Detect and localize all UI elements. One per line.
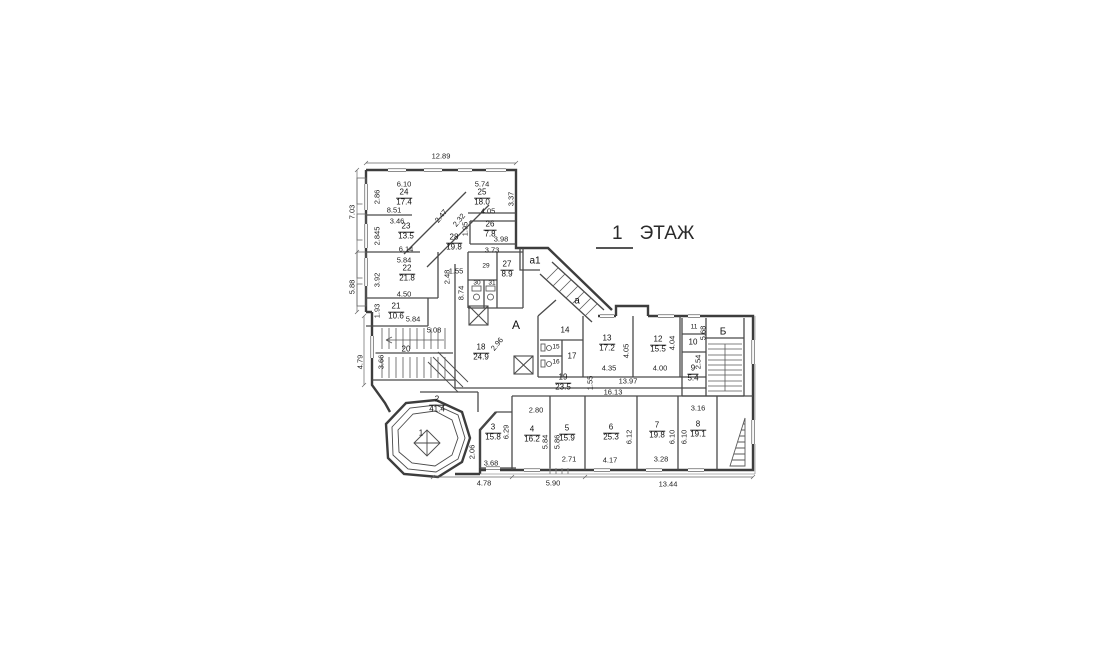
dimension: 13.97 <box>619 377 638 386</box>
dimension: 2.845 <box>373 227 382 246</box>
room-label-21: 2110.6 <box>388 303 404 322</box>
room-label-8: 819.1 <box>690 421 706 440</box>
room-label-14: 14 <box>561 327 570 336</box>
room-label-12: 1215.5 <box>650 336 666 355</box>
letter-B: Б <box>720 327 727 338</box>
room-label-30: 30 <box>473 279 480 286</box>
dimension: 8.74 <box>457 286 466 301</box>
stair-b-steps <box>708 344 742 391</box>
floor-word: ЭТАЖ <box>640 223 695 244</box>
dimension: 3.66 <box>377 355 386 370</box>
room-label-25: 2518.0 <box>474 189 490 208</box>
dimension: 3.46 <box>390 217 405 226</box>
dimension: 5.88 <box>348 280 357 295</box>
dimension: 3.68 <box>484 459 499 468</box>
dimension: 6.12 <box>625 430 634 445</box>
dimension: 4.35 <box>602 364 617 373</box>
room-label-24: 2417.4 <box>396 189 412 208</box>
room-label-10: 10 <box>689 339 698 348</box>
room-label-15: 15 <box>552 343 559 350</box>
room-label-11: 11 <box>691 323 698 330</box>
floorplan-page: 1ЭТАЖ 1 241.4 315.8 416.2 515.9 625.3 71… <box>0 0 1120 658</box>
room-label-16: 16 <box>552 358 559 365</box>
dimension: 13.44 <box>659 480 678 489</box>
dimension: 4.05 <box>481 207 496 216</box>
dimension: 5.68 <box>699 326 708 341</box>
dimension: 3.73 <box>485 246 500 255</box>
room-label-29: 29 <box>482 262 489 269</box>
dimension: 4.78 <box>477 479 492 488</box>
dimension: 7.03 <box>348 205 357 220</box>
room-label-17: 17 <box>568 353 577 362</box>
room-label-6: 625.3 <box>603 424 619 443</box>
room-label-27: 278.9 <box>501 261 514 280</box>
room-label-2: 241.4 <box>429 396 445 415</box>
dimension: 3.37 <box>507 192 516 207</box>
dimension: 4.05 <box>622 344 631 359</box>
floor-title: 1ЭТАЖ <box>596 223 694 249</box>
dimension: 2.71 <box>562 455 577 464</box>
dimension: 6.10 <box>680 430 689 445</box>
letter-a1: а1 <box>529 256 540 267</box>
letter-a-small: а <box>574 296 580 307</box>
dimension: 5.74 <box>475 180 490 189</box>
dimension: 3.28 <box>654 455 669 464</box>
dimension: 4.17 <box>603 456 618 465</box>
dimension: 5.86 <box>553 435 562 450</box>
dimension: 3.16 <box>691 404 706 413</box>
room-label-13: 1317.2 <box>599 335 615 354</box>
floor-number: 1 <box>596 223 633 249</box>
dimension: 6.14 <box>399 245 414 254</box>
room-label-31: 31 <box>488 279 495 286</box>
dimension: 2.06 <box>468 445 477 460</box>
dimension: 1.55 <box>586 376 595 391</box>
dimension: 2.80 <box>529 406 544 415</box>
letter-A: А <box>512 318 520 332</box>
dimension: 3.92 <box>373 273 382 288</box>
room-label-20: 20 <box>402 346 411 355</box>
dimension: 1.55 <box>449 267 464 276</box>
dimension: 5.84 <box>541 435 550 450</box>
stair-triangle-steps <box>730 418 745 466</box>
room-label-1: 1 <box>419 430 423 439</box>
dimension: 4.00 <box>653 364 668 373</box>
room-label-3: 315.8 <box>485 424 501 443</box>
dimension: 6.10 <box>397 180 412 189</box>
dimension: 5.90 <box>546 479 561 488</box>
dimension: 5.08 <box>427 326 442 335</box>
dimension: 3.98 <box>494 235 509 244</box>
room-label-4: 416.2 <box>524 426 540 445</box>
dimension: 2.54 <box>694 355 703 370</box>
dimension: 1.95 <box>461 222 470 237</box>
dimension: 12.89 <box>432 152 451 161</box>
dimension: 2.86 <box>373 190 382 205</box>
room-label-19: 1923.5 <box>555 374 571 393</box>
dimension: 4.50 <box>397 290 412 299</box>
room-label-28: 2819.8 <box>446 234 462 253</box>
dimension: 5.84 <box>406 315 421 324</box>
stair-a-steps <box>546 268 597 316</box>
room-label-5: 515.9 <box>559 425 575 444</box>
room-label-7: 719.8 <box>649 422 665 441</box>
dimension: 4.04 <box>668 336 677 351</box>
dimension: 6.29 <box>502 425 511 440</box>
dimension: 8.51 <box>387 206 402 215</box>
dimension: 5.84 <box>397 256 412 265</box>
dimension: 6.10 <box>668 430 677 445</box>
dimension: 4.79 <box>356 355 365 370</box>
dimension: 1.93 <box>373 304 382 319</box>
dimension: 16.13 <box>604 388 623 397</box>
room-label-18: 1824.9 <box>473 344 489 363</box>
room-label-22: 2221.8 <box>399 265 415 284</box>
